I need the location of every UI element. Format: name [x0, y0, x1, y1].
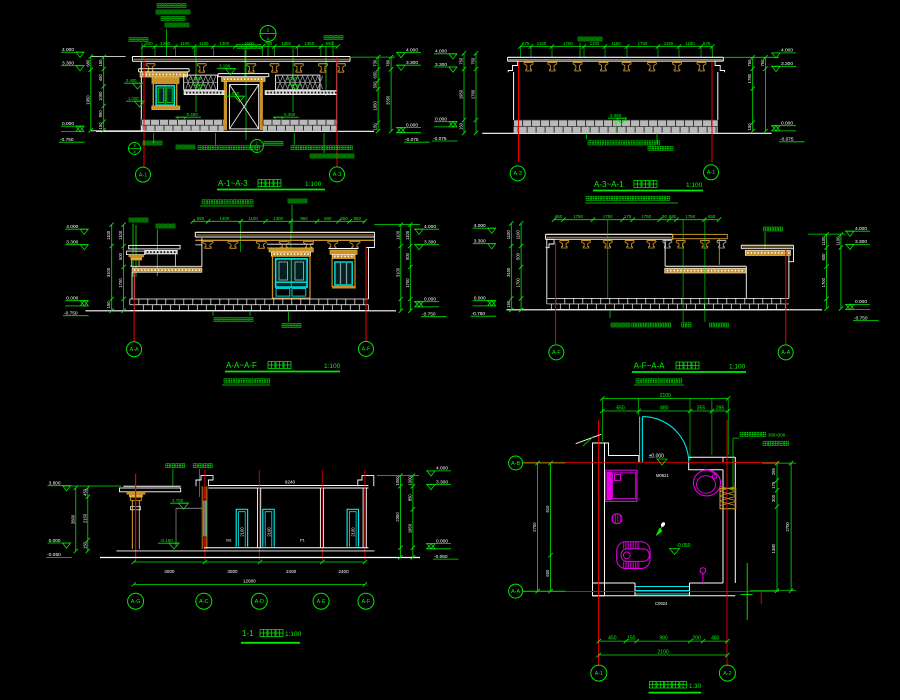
svg-text:3350: 3350: [386, 95, 391, 105]
svg-text:A-C: A-C: [199, 599, 208, 605]
svg-text:1.020: 1.020: [128, 96, 139, 101]
svg-text:1150: 1150: [590, 41, 600, 46]
svg-text:3100: 3100: [106, 267, 111, 277]
svg-text:1100: 1100: [506, 230, 511, 240]
svg-text:980: 980: [659, 636, 668, 642]
svg-text:1700: 1700: [516, 277, 521, 287]
svg-text:450: 450: [98, 73, 103, 81]
svg-text:1400: 1400: [220, 216, 230, 221]
svg-text:150: 150: [82, 541, 87, 549]
svg-text:1000: 1000: [395, 476, 400, 486]
svg-text:450: 450: [82, 488, 87, 496]
svg-text:1150: 1150: [611, 41, 621, 46]
svg-text:300: 300: [771, 494, 776, 502]
svg-text:150: 150: [747, 123, 752, 131]
svg-text:1850: 1850: [407, 523, 412, 533]
svg-text:295: 295: [771, 467, 776, 475]
svg-text:2.400: 2.400: [126, 78, 137, 83]
svg-text:9240: 9240: [285, 479, 296, 484]
svg-text:950: 950: [98, 110, 103, 118]
svg-text:M1: M1: [226, 538, 232, 543]
svg-text:2100: 2100: [266, 527, 271, 537]
svg-text:1050: 1050: [98, 91, 103, 101]
svg-text:A-B: A-B: [511, 461, 520, 467]
svg-text:2: 2: [267, 28, 270, 34]
svg-text:A-F: A-F: [362, 599, 371, 605]
svg-text:C0924: C0924: [655, 601, 668, 606]
svg-text:1750: 1750: [685, 214, 695, 219]
svg-text:650: 650: [555, 214, 563, 219]
svg-text:355: 355: [697, 406, 706, 412]
svg-text:575: 575: [522, 41, 530, 46]
svg-text:150: 150: [98, 122, 103, 130]
svg-text:200: 200: [693, 636, 702, 642]
svg-text:1950: 1950: [373, 101, 378, 111]
svg-text:1100: 1100: [405, 230, 410, 240]
svg-text:3800: 3800: [70, 514, 75, 524]
svg-text:3.050: 3.050: [610, 113, 622, 118]
svg-text:1600: 1600: [244, 41, 254, 46]
svg-text:1100: 1100: [106, 230, 111, 240]
svg-text:500: 500: [373, 81, 378, 89]
svg-text:1700: 1700: [405, 278, 410, 288]
svg-text:2400: 2400: [338, 569, 349, 574]
svg-text:175: 175: [771, 481, 776, 489]
svg-text:1750: 1750: [638, 41, 648, 46]
svg-text:M0821: M0821: [656, 473, 669, 478]
svg-text:1750: 1750: [641, 214, 651, 219]
svg-text:1200: 1200: [160, 41, 170, 46]
svg-text:-0.150: -0.150: [160, 538, 173, 543]
svg-text:700: 700: [265, 41, 273, 46]
svg-text:150: 150: [106, 301, 111, 309]
svg-text:600: 600: [145, 41, 153, 46]
svg-text:1350: 1350: [304, 41, 314, 46]
svg-text:A-F: A-F: [552, 350, 561, 356]
svg-text:12600: 12600: [243, 578, 256, 583]
svg-text:650: 650: [326, 41, 334, 46]
svg-text:150: 150: [98, 59, 103, 67]
svg-text:850: 850: [407, 494, 412, 502]
svg-text:1780: 1780: [471, 89, 476, 99]
svg-text:3000: 3000: [227, 569, 238, 574]
svg-text:0.450: 0.450: [187, 112, 199, 117]
svg-text:500: 500: [118, 252, 123, 260]
svg-text:A-A: A-A: [781, 350, 790, 356]
svg-text:1100: 1100: [180, 41, 190, 46]
svg-text:3100: 3100: [506, 267, 511, 277]
svg-text:1:100: 1:100: [324, 363, 341, 370]
svg-text:550: 550: [197, 216, 205, 221]
svg-text:150: 150: [373, 123, 378, 131]
svg-text:575: 575: [703, 41, 711, 46]
svg-text:2100: 2100: [658, 650, 669, 656]
svg-text:610: 610: [545, 505, 550, 513]
svg-text:2700: 2700: [532, 522, 537, 532]
svg-text:90: 90: [662, 214, 667, 219]
svg-text:750: 750: [459, 57, 464, 65]
svg-text:1:100: 1:100: [305, 181, 322, 188]
svg-text:1000: 1000: [407, 476, 412, 486]
svg-text:750: 750: [747, 59, 752, 67]
svg-text:2400: 2400: [286, 569, 297, 574]
svg-text:A-2: A-2: [723, 671, 731, 677]
svg-text:1:100: 1:100: [729, 364, 746, 371]
svg-text:480: 480: [711, 636, 720, 642]
svg-text:450: 450: [608, 636, 617, 642]
svg-text:2100: 2100: [660, 393, 671, 399]
svg-text:A-1: A-1: [595, 671, 603, 677]
svg-text:950: 950: [300, 216, 308, 221]
svg-text:300>300: 300>300: [768, 433, 786, 438]
svg-text:2.750: 2.750: [172, 498, 184, 503]
svg-text:2150: 2150: [82, 513, 87, 523]
svg-text:A-1~A-3: A-1~A-3: [218, 179, 248, 188]
svg-text:1150: 1150: [664, 41, 674, 46]
svg-text:A-A: A-A: [511, 589, 520, 595]
svg-text:680: 680: [85, 59, 90, 67]
svg-text:1950: 1950: [85, 95, 90, 105]
svg-text:A-E: A-E: [317, 599, 326, 605]
svg-text:750: 750: [760, 59, 765, 67]
svg-text:1150: 1150: [537, 41, 547, 46]
svg-text:A-3~A-1: A-3~A-1: [594, 180, 624, 189]
svg-text:1300: 1300: [273, 216, 283, 221]
svg-text:A-A: A-A: [130, 347, 139, 353]
svg-text:A-G: A-G: [131, 599, 141, 605]
svg-text:150: 150: [506, 300, 511, 308]
svg-text:1780: 1780: [747, 73, 752, 83]
svg-text:A-F~A-A: A-F~A-A: [634, 362, 666, 371]
svg-text:A-A~A-F: A-A~A-F: [226, 361, 257, 370]
svg-text:3.050: 3.050: [286, 76, 298, 81]
svg-text:0.450: 0.450: [284, 112, 296, 117]
svg-text:150: 150: [459, 122, 464, 130]
svg-text:175: 175: [624, 214, 632, 219]
svg-text:150: 150: [627, 636, 636, 642]
svg-text:1380: 1380: [771, 543, 776, 553]
svg-text:600: 600: [545, 569, 550, 577]
svg-text:1700: 1700: [821, 277, 826, 287]
svg-text:500: 500: [516, 252, 521, 260]
svg-text:1750: 1750: [603, 214, 613, 219]
svg-text:2350: 2350: [395, 512, 400, 522]
svg-text:500: 500: [324, 216, 332, 221]
svg-text:650: 650: [708, 214, 716, 219]
svg-text:1950: 1950: [459, 89, 464, 99]
svg-text:1100: 1100: [118, 230, 123, 240]
svg-text:880: 880: [660, 406, 669, 412]
svg-text:750: 750: [471, 57, 476, 65]
svg-text:1300: 1300: [219, 41, 229, 46]
svg-text:1100: 1100: [821, 236, 826, 246]
svg-text:1100: 1100: [516, 230, 521, 240]
svg-text:550: 550: [340, 216, 348, 221]
svg-text:P1: P1: [300, 538, 306, 543]
svg-text:730: 730: [373, 59, 378, 67]
svg-text:650: 650: [373, 71, 378, 79]
svg-text:A-D: A-D: [255, 599, 264, 605]
svg-text:1150: 1150: [685, 41, 695, 46]
svg-text:1:100: 1:100: [285, 631, 302, 638]
svg-text:500: 500: [821, 253, 826, 261]
svg-text:1100: 1100: [248, 216, 258, 221]
svg-text:650: 650: [616, 406, 625, 412]
svg-text:3000: 3000: [164, 569, 175, 574]
svg-text:A-1: A-1: [707, 170, 715, 176]
svg-text:3100: 3100: [395, 267, 400, 277]
svg-text:1750: 1750: [573, 214, 583, 219]
svg-text:1100: 1100: [835, 236, 840, 246]
svg-text:3.190: 3.190: [219, 64, 231, 69]
svg-text:1-1: 1-1: [242, 629, 254, 638]
svg-text:780: 780: [386, 59, 391, 67]
svg-text:2100: 2100: [240, 527, 245, 537]
svg-text:500: 500: [405, 252, 410, 260]
svg-text:1700: 1700: [118, 278, 123, 288]
svg-text:1:100: 1:100: [686, 182, 703, 189]
svg-text:2700: 2700: [785, 522, 790, 532]
svg-text:1350: 1350: [281, 41, 291, 46]
svg-text:3.050: 3.050: [228, 91, 240, 96]
svg-text:650: 650: [669, 214, 677, 219]
svg-text:A-1: A-1: [139, 172, 147, 178]
svg-text:A-F: A-F: [362, 347, 371, 353]
svg-text:295: 295: [716, 406, 725, 412]
svg-text:2100: 2100: [351, 527, 356, 537]
svg-text:1750: 1750: [563, 41, 573, 46]
svg-text:3.050: 3.050: [190, 76, 202, 81]
svg-text:A-3: A-3: [514, 171, 522, 177]
svg-text:1:30: 1:30: [689, 683, 702, 690]
svg-text:1100: 1100: [199, 41, 209, 46]
svg-text:1100: 1100: [395, 230, 400, 240]
svg-text:A-3: A-3: [333, 172, 341, 178]
svg-text:650: 650: [354, 216, 362, 221]
